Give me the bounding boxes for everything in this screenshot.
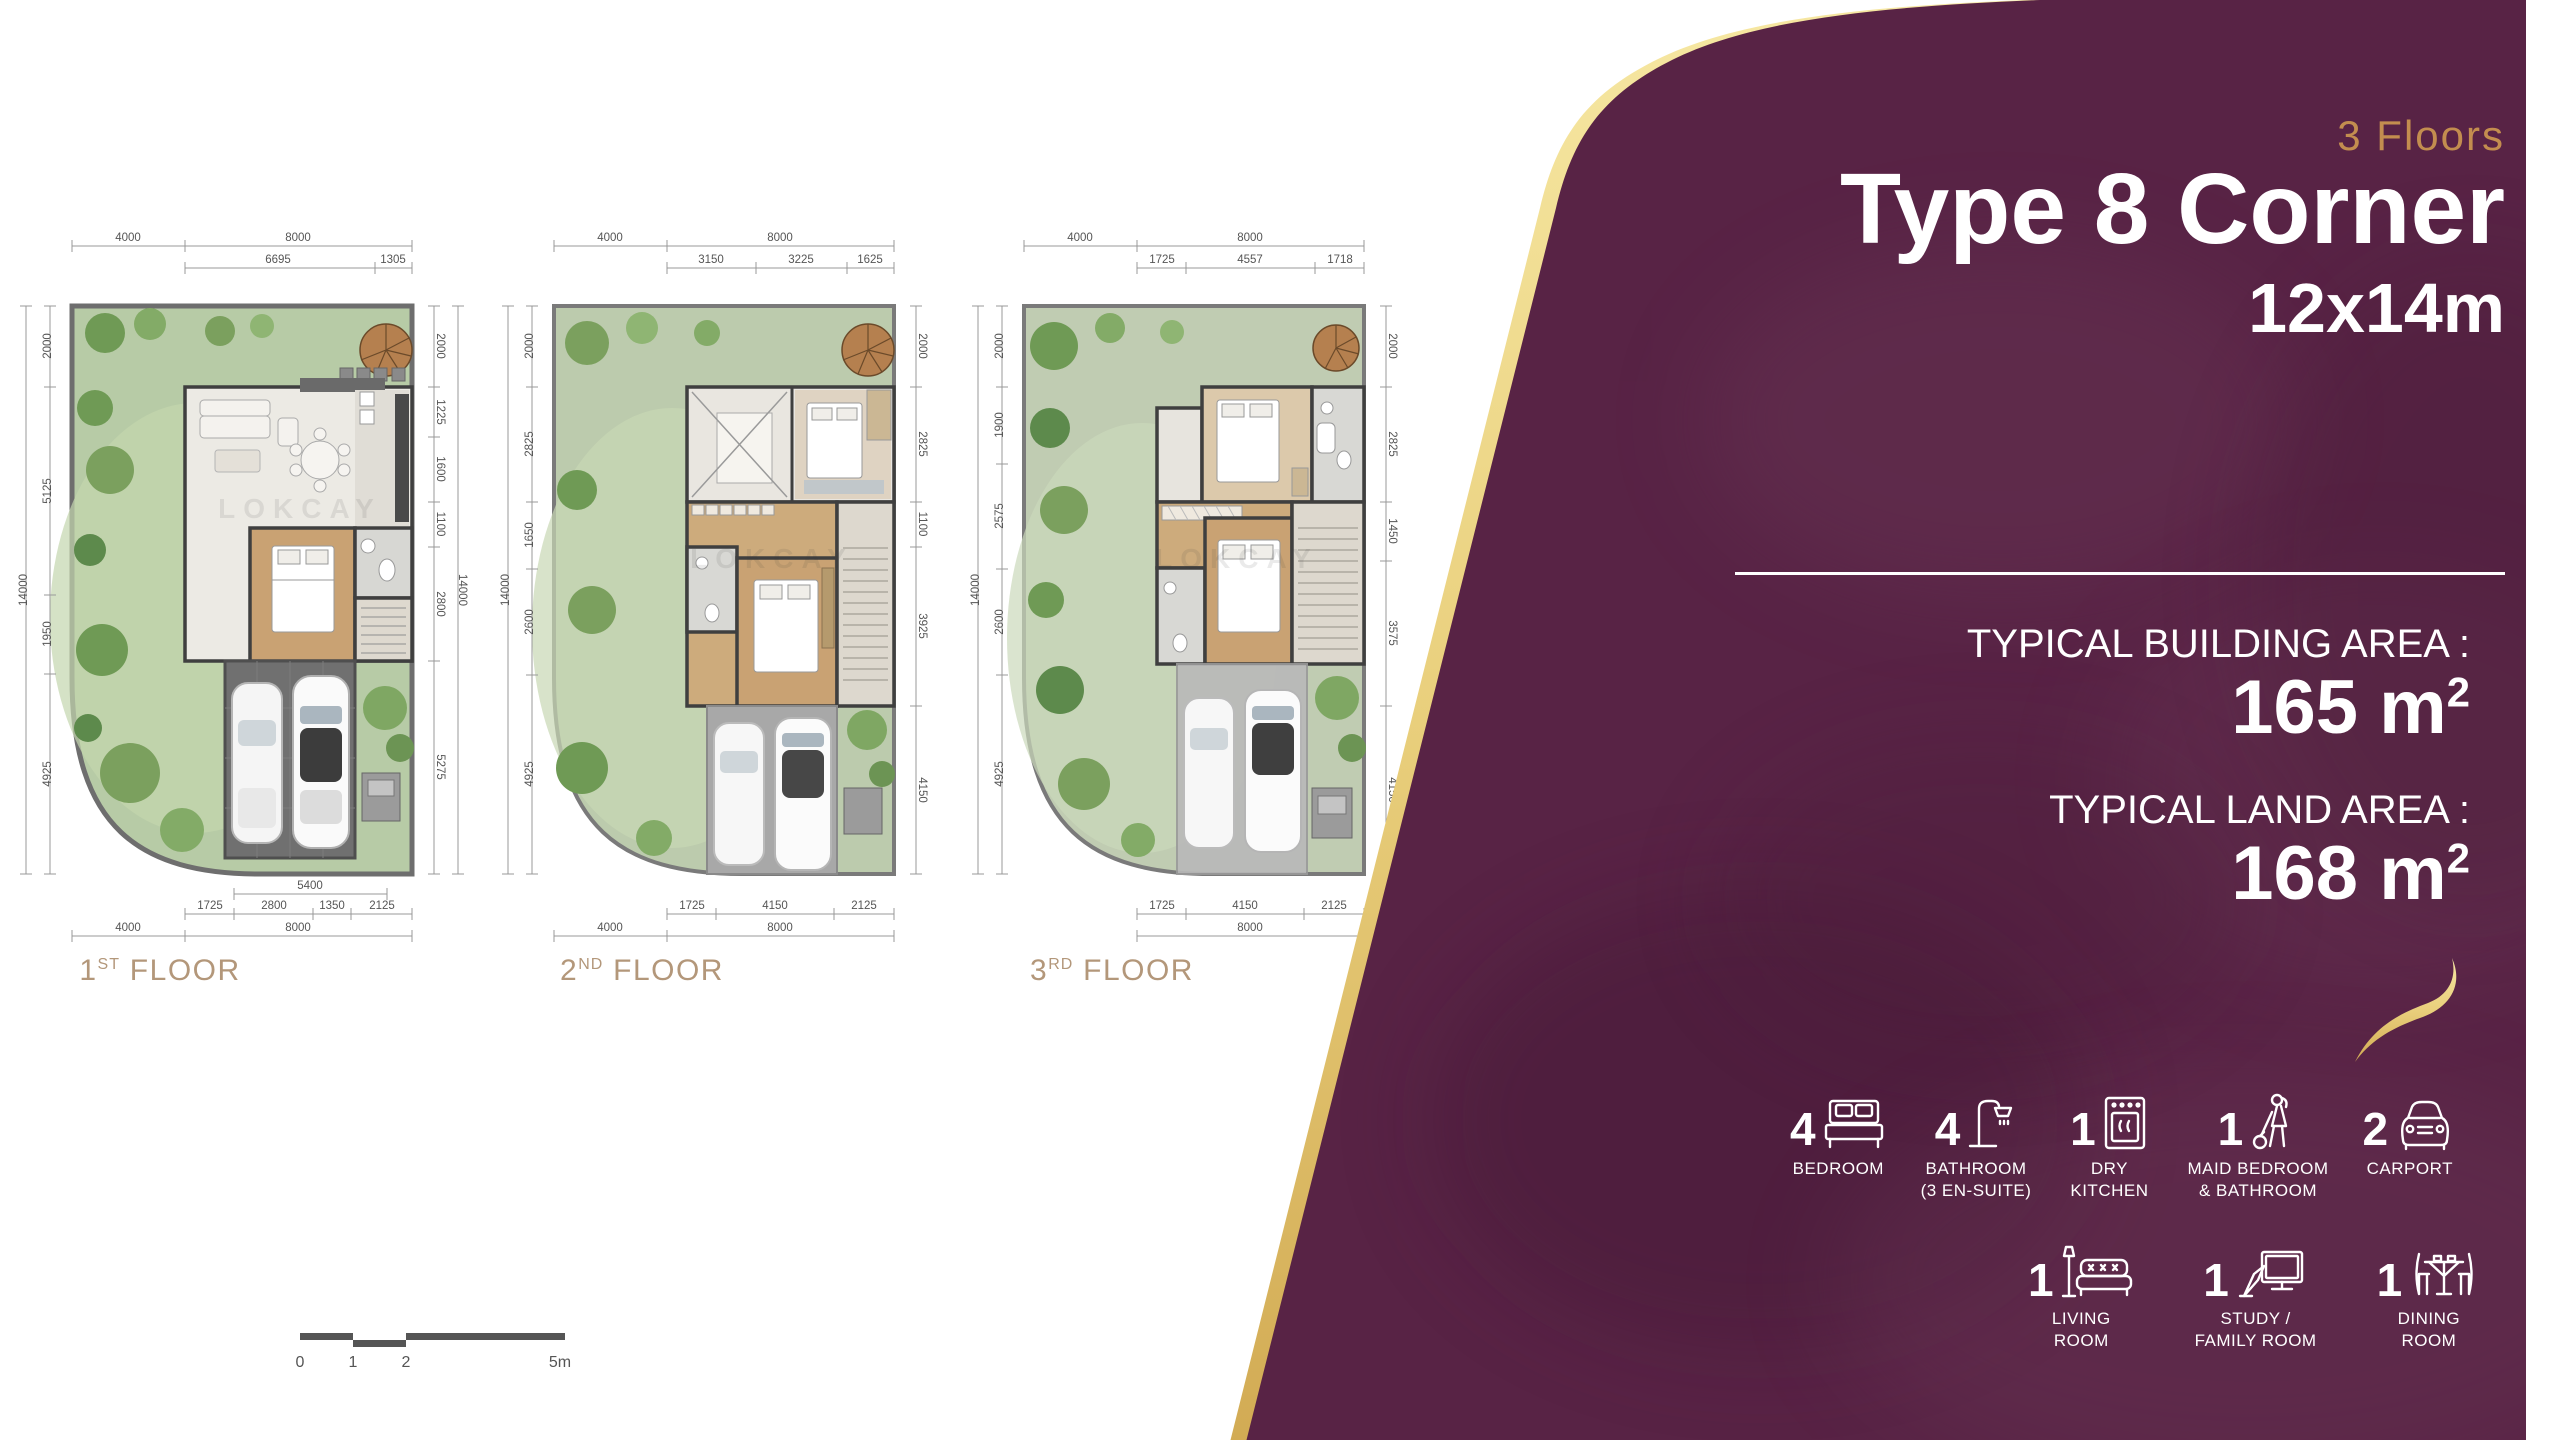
feature-label: MAID BEDROOM (2187, 1158, 2328, 1180)
feature-bathroom: 4 BATHROOM (3 EN-SUITE) (1921, 1080, 2032, 1202)
dry-kitchen-count: 1 (2070, 1108, 2096, 1152)
land-area-value: 168 m2 (1600, 830, 2470, 917)
feature-row-1: 4 BEDROOM (1790, 1080, 2520, 1202)
carport-count: 2 (2363, 1108, 2389, 1152)
dining-room-count: 1 (2377, 1259, 2403, 1303)
feature-label-2: & BATHROOM (2187, 1180, 2328, 1202)
maid-room-count: 1 (2218, 1108, 2244, 1152)
unit-dimensions: 12x14m (1600, 268, 2505, 348)
feature-study-room: 1 STUDY / FAMILY ROOM (2195, 1230, 2317, 1352)
feature-summary: 4 BEDROOM (1790, 1080, 2520, 1352)
building-area-sup: 2 (2447, 669, 2470, 716)
dining-icon (2407, 1246, 2481, 1302)
oven-icon (2101, 1094, 2149, 1152)
land-area-label: TYPICAL LAND AREA : (1600, 788, 2470, 833)
feature-bedroom: 4 BEDROOM (1790, 1080, 1887, 1202)
feature-label: CARPORT (2367, 1158, 2453, 1180)
bed-icon (1821, 1098, 1887, 1152)
feature-label-2: ROOM (2398, 1330, 2461, 1352)
feature-label: LIVING (2052, 1308, 2111, 1330)
building-area-number: 165 m (2231, 665, 2447, 750)
feature-label: BATHROOM (1921, 1158, 2032, 1180)
feature-label-2: (3 EN-SUITE) (1921, 1180, 2032, 1202)
study-room-count: 1 (2203, 1259, 2229, 1303)
land-area-sup: 2 (2447, 835, 2470, 882)
sofa-icon (2059, 1244, 2135, 1302)
feature-label: DINING (2398, 1308, 2461, 1330)
land-area-number: 168 m (2231, 831, 2447, 916)
feature-label: BEDROOM (1793, 1158, 1884, 1180)
page-title: Type 8 Corner (1600, 152, 2505, 267)
feature-living-room: 1 LIVING ROOM (2028, 1230, 2135, 1352)
building-area-label: TYPICAL BUILDING AREA : (1600, 622, 2470, 667)
feature-row-2: 1 LIVING ROOM (2028, 1230, 2520, 1352)
feature-label-2: KITCHEN (2070, 1180, 2148, 1202)
feature-label: DRY (2070, 1158, 2148, 1180)
shower-icon (1965, 1096, 2017, 1152)
feature-dining-room: 1 DINING ROOM (2377, 1230, 2482, 1352)
feature-carport: 2 CARPORT (2363, 1080, 2458, 1202)
feature-label-2: ROOM (2052, 1330, 2111, 1352)
living-room-count: 1 (2028, 1259, 2054, 1303)
building-area-value: 165 m2 (1600, 664, 2470, 751)
car-icon (2393, 1098, 2457, 1152)
bathroom-count: 4 (1935, 1108, 1961, 1152)
page: LOKCAY 4000 8000 6695 1305 14000 2000 (0, 0, 2560, 1440)
bedroom-count: 4 (1790, 1108, 1816, 1152)
feature-dry-kitchen: 1 DRY KITCHEN (2065, 1080, 2153, 1202)
maid-icon (2248, 1092, 2298, 1152)
feature-label: STUDY / (2195, 1308, 2317, 1330)
desk-icon (2234, 1246, 2308, 1302)
feature-maid-room: 1 MAID BEDROOM (2187, 1080, 2328, 1202)
divider (1735, 572, 2505, 575)
feature-label-2: FAMILY ROOM (2195, 1330, 2317, 1352)
